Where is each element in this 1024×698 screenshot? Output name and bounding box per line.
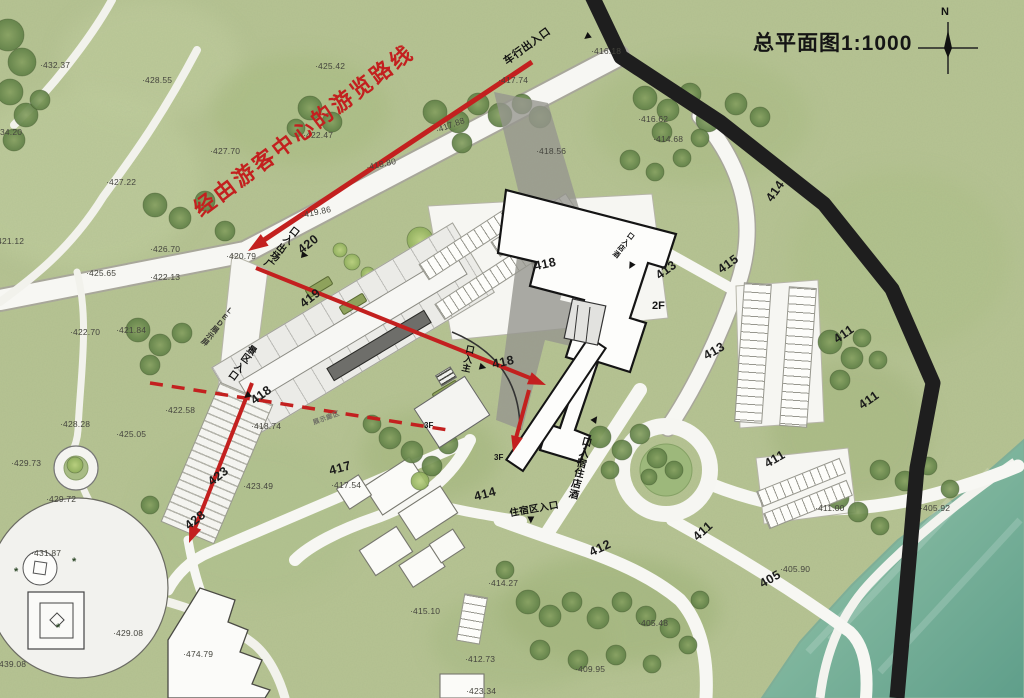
spot-elevation: ·429.72 [46, 494, 76, 504]
spot-elevation: ·428.28 [60, 419, 90, 429]
spot-elevation: ·429.08 [113, 628, 143, 638]
spot-elevation: ·425.65 [86, 268, 116, 278]
spot-elevation: ·434.20 [0, 127, 22, 137]
spot-elevation: ·418.56 [536, 146, 566, 156]
spot-elevation: ·417.74 [498, 75, 528, 85]
spot-elevation: ·423.34 [466, 686, 496, 696]
spot-elevation: ·474.79 [183, 649, 213, 659]
spot-elevation: ·405.48 [638, 618, 668, 628]
spot-elevation: ·439.08 [0, 659, 26, 669]
spot-elevation: ·417.54 [331, 480, 361, 490]
plan-title: 总平面图1:1000 [753, 27, 912, 57]
direction-arrow-icon: ▶ [526, 517, 537, 524]
spot-elevation: ·416.62 [638, 114, 668, 124]
spot-elevation: ·425.42 [315, 61, 345, 71]
north-label: N [941, 6, 949, 18]
spot-elevation: ·414.27 [488, 578, 518, 588]
structures-overlay [0, 0, 1024, 698]
spot-elevation: ·421.12 [0, 236, 24, 246]
spot-elevation: ·418.74 [251, 421, 281, 431]
spot-elevation: ·414.68 [653, 134, 683, 144]
spot-elevation: ·428.55 [142, 75, 172, 85]
spot-elevation: ·429.73 [11, 458, 41, 468]
terrace-3f [414, 376, 489, 447]
spot-elevation: ·422.70 [70, 327, 100, 337]
tree-symbol-icon: * [14, 566, 18, 578]
spot-elevation: ·416.18 [591, 46, 621, 56]
spot-elevation: ·405.92 [920, 503, 950, 513]
tree-symbol-icon: * [56, 622, 60, 634]
floor-label: 3F [424, 421, 433, 430]
spot-elevation: ·425.05 [116, 429, 146, 439]
spot-elevation: ·427.70 [210, 146, 240, 156]
spot-elevation: ·432.37 [40, 60, 70, 70]
spot-elevation: ·409.95 [575, 664, 605, 674]
spot-elevation: ·420.79 [226, 251, 256, 261]
main-highway [591, 0, 933, 698]
spot-elevation: ·415.10 [410, 606, 440, 616]
spot-elevation: ·405.90 [780, 564, 810, 574]
spot-elevation: ·426.70 [150, 244, 180, 254]
tree-symbol-icon: * [72, 556, 76, 568]
atrium [564, 299, 606, 345]
spot-elevation: ·412.73 [465, 654, 495, 664]
floor-label: 3F [494, 453, 503, 462]
spot-elevation: ·422.58 [165, 405, 195, 415]
spot-elevation: ·427.22 [106, 177, 136, 187]
north-compass-icon [918, 22, 978, 74]
spot-elevation: ·423.49 [243, 481, 273, 491]
spot-elevation: ·431.87 [31, 548, 61, 558]
spot-elevation: ·411.00 [815, 503, 845, 513]
floor-label: 2F [652, 300, 665, 312]
spot-elevation: ·422.13 [150, 272, 180, 282]
spot-elevation: ·421.84 [116, 325, 146, 335]
site-plan: 总平面图1:1000 N 经由游客中心的游览路线 ·432.37·428.55·… [0, 0, 1024, 698]
